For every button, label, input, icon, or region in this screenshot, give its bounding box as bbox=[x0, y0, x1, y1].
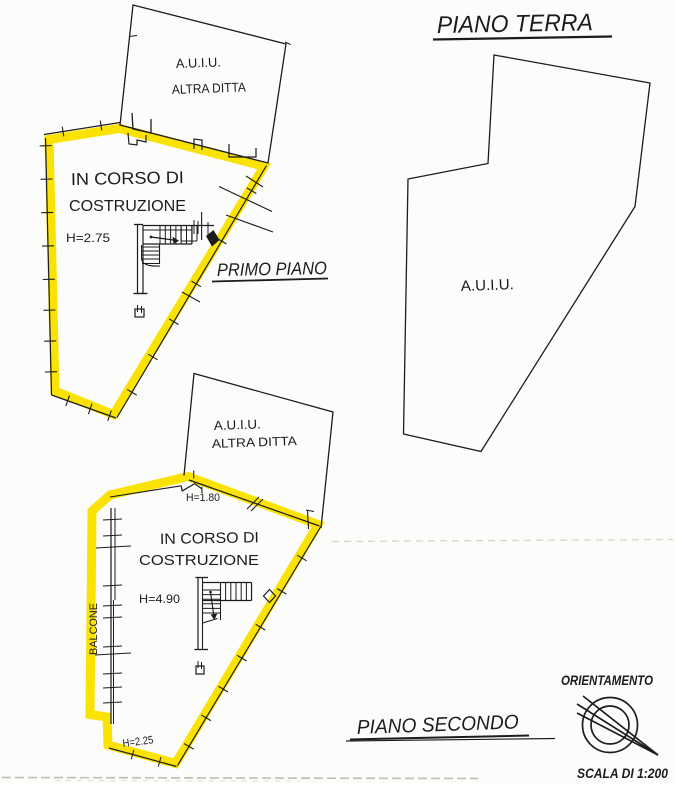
svg-text:COSTRUZIONE: COSTRUZIONE bbox=[69, 198, 186, 215]
svg-text:SCALA DI 1:200: SCALA DI 1:200 bbox=[577, 765, 668, 781]
svg-text:ALTRA DITTA: ALTRA DITTA bbox=[172, 79, 247, 97]
svg-text:IN CORSO DI: IN CORSO DI bbox=[71, 168, 184, 189]
svg-text:A.U.I.U.: A.U.I.U. bbox=[214, 416, 261, 433]
svg-text:PIANO TERRA: PIANO TERRA bbox=[437, 9, 593, 39]
svg-text:COSTRUZIONE: COSTRUZIONE bbox=[139, 552, 259, 569]
svg-text:BALCONE: BALCONE bbox=[88, 603, 100, 655]
svg-text:A.U.I.U.: A.U.I.U. bbox=[461, 276, 515, 295]
svg-text:H=2.75: H=2.75 bbox=[66, 231, 110, 245]
svg-text:A.U.I.U.: A.U.I.U. bbox=[176, 54, 221, 71]
svg-text:IN CORSO DI: IN CORSO DI bbox=[160, 529, 259, 548]
svg-text:ORIENTAMENTO: ORIENTAMENTO bbox=[561, 672, 653, 688]
svg-text:H=4.90: H=4.90 bbox=[139, 592, 180, 606]
svg-text:PRIMO PIANO: PRIMO PIANO bbox=[217, 258, 327, 280]
svg-text:H=1.80: H=1.80 bbox=[186, 492, 220, 504]
svg-text:ALTRA DITTA: ALTRA DITTA bbox=[212, 434, 298, 451]
